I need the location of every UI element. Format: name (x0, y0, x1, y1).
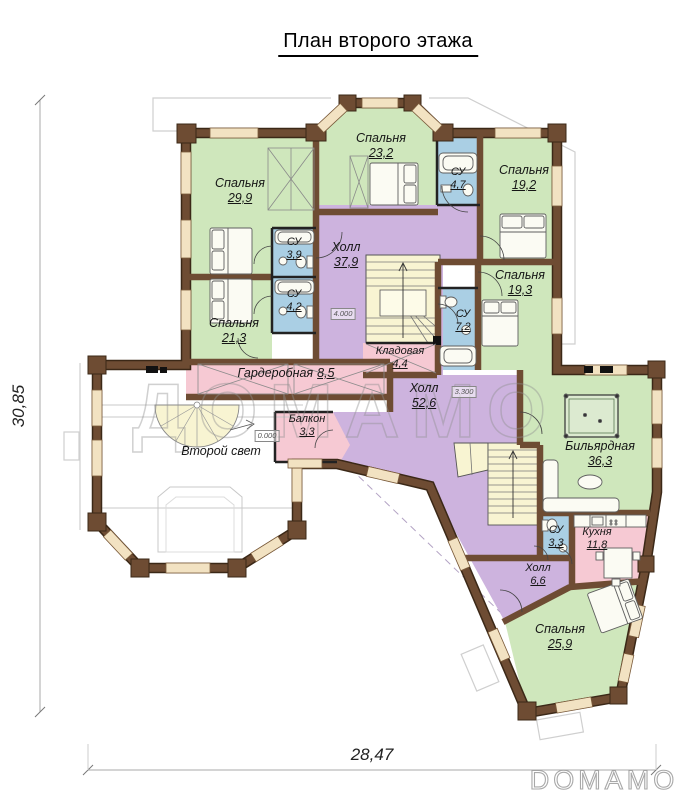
bed (370, 163, 418, 205)
room-area: 19,3 (508, 283, 532, 297)
elevation-mark: 0.000 (255, 430, 280, 442)
room-label-bedroom-19-3: Спальня19,3 (495, 268, 545, 298)
room-area: 11,8 (587, 539, 608, 551)
bed (482, 300, 518, 346)
page-title: План второго этажа (278, 30, 478, 57)
room-label-hall-6-6: Холл6,6 (525, 562, 550, 588)
room-label-bedroom-19-2: Спальня19,2 (499, 163, 549, 193)
room-name: СУ (287, 288, 301, 300)
room-name: Спальня (209, 316, 259, 330)
room-area: 19,2 (512, 178, 536, 192)
room-area: 3,3 (299, 426, 314, 438)
room-name: Кухня (582, 526, 611, 538)
room-label-bathroom-7-2: СУ7,2 (455, 308, 470, 334)
room-area: 6,6 (530, 575, 545, 587)
room-name: Холл (332, 240, 361, 254)
room-name: Холл (525, 562, 550, 574)
room-name: Спальня (215, 176, 265, 190)
room-area: 4,4 (392, 358, 407, 370)
room-area: 29,9 (228, 191, 252, 205)
room-name: Кладовая (376, 345, 425, 357)
room-area: 21,3 (222, 331, 246, 345)
room-label-bedroom-25-9: Спальня25,9 (535, 622, 585, 652)
elevation-mark: 4.000 (331, 308, 356, 320)
room-label-second-light: Второй свет (181, 444, 261, 459)
room-name: Холл (410, 381, 439, 395)
room-area: 3,9 (286, 249, 301, 261)
dimension-height: 30,85 (9, 377, 29, 435)
room-name: СУ (451, 166, 465, 178)
room-name: СУ (287, 236, 301, 248)
room-name: СУ (456, 308, 470, 320)
room-area: 4,7 (450, 179, 465, 191)
watermark-center: ДОМАМО (132, 369, 558, 454)
room-name: Бильярдная (565, 439, 635, 453)
floor-plan-drawing: ДОМАМО DOMAMO (0, 0, 689, 800)
room-name: Спальня (499, 163, 549, 177)
room-area: 52,6 (412, 396, 436, 410)
room-name: Спальня (495, 268, 545, 282)
room-label-kitchen-11-8: Кухня11,8 (582, 526, 611, 552)
room-label-balcony-3-3: Балкон3,3 (289, 413, 326, 439)
room-label-bathroom-4-2: СУ4,2 (286, 288, 301, 314)
bed (210, 228, 252, 274)
room-label-bathroom-3-3: СУ3,3 (548, 524, 563, 550)
billiard-table (564, 394, 619, 438)
room-area: 36,3 (588, 454, 612, 468)
room-area: 37,9 (334, 255, 358, 269)
room-label-bedroom-23-2: Спальня23,2 (356, 131, 406, 161)
bed (500, 214, 546, 258)
room-name: Второй свет (181, 444, 261, 458)
room-label-bedroom-29-9: Спальня29,9 (215, 176, 265, 206)
room-label-wardrobe-8-5: Гардеробная8,5 (238, 366, 335, 381)
room-label-bathroom-3-9: СУ3,9 (286, 236, 301, 262)
elevation-mark: 3.300 (452, 386, 477, 398)
room-name: Спальня (356, 131, 406, 145)
room-name: Балкон (289, 413, 326, 425)
room-area: 25,9 (548, 637, 572, 651)
room-label-storage-4-4: Кладовая4,4 (376, 345, 425, 371)
room-area: 4,2 (286, 301, 301, 313)
dimension-width: 28,47 (351, 745, 394, 765)
room-area: 3,3 (548, 537, 563, 549)
room-label-hall-37-9: Холл37,9 (332, 240, 361, 270)
floor-plan: ДОМАМО DOMAMO План второго этажа 30,85 2… (0, 0, 689, 800)
watermark-corner: DOMAMO (530, 765, 679, 795)
main-staircase (366, 255, 440, 343)
room-name: Гардеробная (238, 366, 314, 380)
room-name: Спальня (535, 622, 585, 636)
room-name: СУ (549, 524, 563, 536)
room-area: 23,2 (369, 146, 393, 160)
room-label-billiard-36-3: Бильярдная36,3 (565, 439, 635, 469)
room-area: 7,2 (455, 321, 470, 333)
room-label-hall-52-6: Холл52,6 (410, 381, 439, 411)
room-area: 8,5 (317, 366, 334, 380)
room-label-bedroom-21-3: Спальня21,3 (209, 316, 259, 346)
room-label-bathroom-4-7: СУ4,7 (450, 166, 465, 192)
